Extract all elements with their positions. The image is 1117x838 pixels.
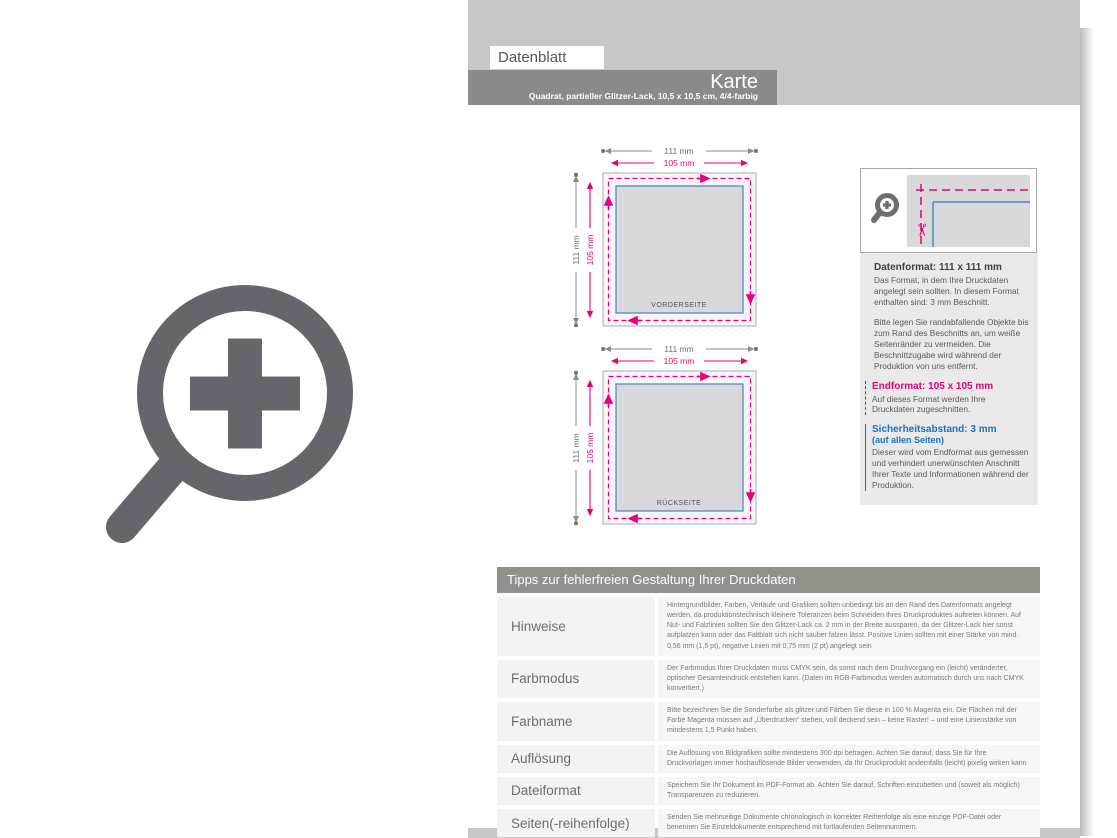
front-diagram: 111 mm 105 mm 111 mm 105 mm VORDERSEITE — [571, 146, 758, 327]
tip-label-hinweise: Hinweise — [497, 597, 655, 656]
tips-section: Tipps zur fehlerfreien Gestaltung Ihrer … — [497, 567, 1040, 838]
format-info-panel: Datenformat: 111 x 111 mm Das Format, in… — [860, 253, 1038, 505]
dim-outer-height: 111 mm — [571, 433, 581, 462]
bleed-note-body: Bitte legen Sie randabfallende Objekte b… — [874, 317, 1030, 372]
sicherheitsabstand-section: Sicherheitsabstand: 3 mm (auf allen Seit… — [865, 424, 1030, 491]
sicherheitsabstand-body: Dieser wird vom Endformat aus gemessen u… — [872, 447, 1030, 491]
endformat-line — [616, 384, 743, 511]
dim-outer-width: 111 mm — [664, 146, 693, 156]
tip-text-seitenreihenfolge: Senden Sie mehrseitige Dokumente chronol… — [658, 809, 1040, 837]
table-row: Farbmodus Der Farbmodus Ihrer Druckdaten… — [497, 660, 1040, 698]
title-bar: Karte Quadrat, partieller Glitzer-Lack, … — [468, 70, 777, 105]
zoom-plus-icon — [868, 191, 902, 227]
back-side-label: RÜCKSEITE — [657, 499, 702, 507]
datenformat-heading: Datenformat: 111 x 111 mm — [874, 262, 1030, 273]
dim-inner-width: 105 mm — [664, 158, 695, 168]
tips-header: Tipps zur fehlerfreien Gestaltung Ihrer … — [497, 567, 1040, 593]
product-subtitle: Quadrat, partieller Glitzer-Lack, 10,5 x… — [529, 91, 758, 101]
endformat-section: Endformat: 105 x 105 mm Auf dieses Forma… — [865, 381, 1030, 416]
tip-label-seitenreihenfolge: Seiten(-reihenfolge) — [497, 809, 655, 837]
tip-text-aufloesung: Die Auflösung von Bildgrafiken sollte mi… — [658, 745, 1040, 773]
endformat-heading: Endformat: 105 x 105 mm — [872, 381, 1030, 392]
sicherheitsabstand-heading: Sicherheitsabstand: 3 mm — [872, 424, 1030, 435]
datasheet-page: Datenblatt Karte Quadrat, partieller Gli… — [468, 0, 1080, 838]
dim-inner-height: 105 mm — [585, 235, 595, 266]
tip-text-farbmodus: Der Farbmodus Ihrer Druckdaten muss CMYK… — [658, 660, 1040, 698]
tip-label-farbmodus: Farbmodus — [497, 660, 655, 698]
tip-label-farbname: Farbname — [497, 702, 655, 740]
tip-text-dateiformat: Speichern Sie Ihr Dokument im PDF-Format… — [658, 777, 1040, 805]
page-shadow — [1080, 28, 1094, 836]
tip-label-dateiformat: Dateiformat — [497, 777, 655, 805]
screenshot-canvas: Datenblatt Karte Quadrat, partieller Gli… — [0, 0, 1117, 838]
format-diagrams: 111 mm 105 mm 111 mm 105 mm VORDERSEITE — [560, 140, 772, 536]
front-side-label: VORDERSEITE — [651, 302, 707, 309]
bleed-note-section: Bitte legen Sie randabfallende Objekte b… — [874, 317, 1030, 372]
dim-outer-width: 111 mm — [664, 344, 693, 354]
table-row: Auflösung Die Auflösung von Bildgrafiken… — [497, 745, 1040, 773]
tip-text-farbname: Bitte bezeichnen Sie die Sonderfarbe als… — [658, 702, 1040, 740]
sicherheitsabstand-subheading: (auf allen Seiten) — [872, 435, 1030, 445]
endformat-line — [616, 186, 743, 313]
tab-datenblatt[interactable]: Datenblatt — [490, 46, 604, 69]
table-row: Dateiformat Speichern Sie Ihr Dokument i… — [497, 777, 1040, 805]
dim-inner-height: 105 mm — [585, 433, 595, 464]
datenformat-section: Datenformat: 111 x 111 mm Das Format, in… — [874, 262, 1030, 308]
dim-outer-height: 111 mm — [571, 235, 581, 264]
back-diagram: 111 mm 105 mm 111 mm 105 mm RÜCKSEITE — [571, 344, 758, 525]
scissors-icon: ✂ — [912, 223, 931, 237]
bleed-detail-card[interactable]: ✂ — [860, 168, 1037, 253]
tip-label-aufloesung: Auflösung — [497, 745, 655, 773]
datenformat-body: Das Format, in dem Ihre Druckdaten angel… — [874, 275, 1030, 308]
table-row: Seiten(-reihenfolge) Senden Sie mehrseit… — [497, 809, 1040, 837]
endformat-body: Auf dieses Format werden Ihre Druckdaten… — [872, 394, 1030, 416]
tip-text-hinweise: Hintergrundbilder, Farben, Verläufe und … — [658, 597, 1040, 656]
zoom-plus-watermark-icon — [95, 278, 360, 548]
dim-inner-width: 105 mm — [664, 356, 695, 366]
table-row: Farbname Bitte bezeichnen Sie die Sonder… — [497, 702, 1040, 740]
table-row: Hinweise Hintergrundbilder, Farben, Verl… — [497, 597, 1040, 656]
bleed-corner-detail: ✂ — [907, 175, 1030, 247]
